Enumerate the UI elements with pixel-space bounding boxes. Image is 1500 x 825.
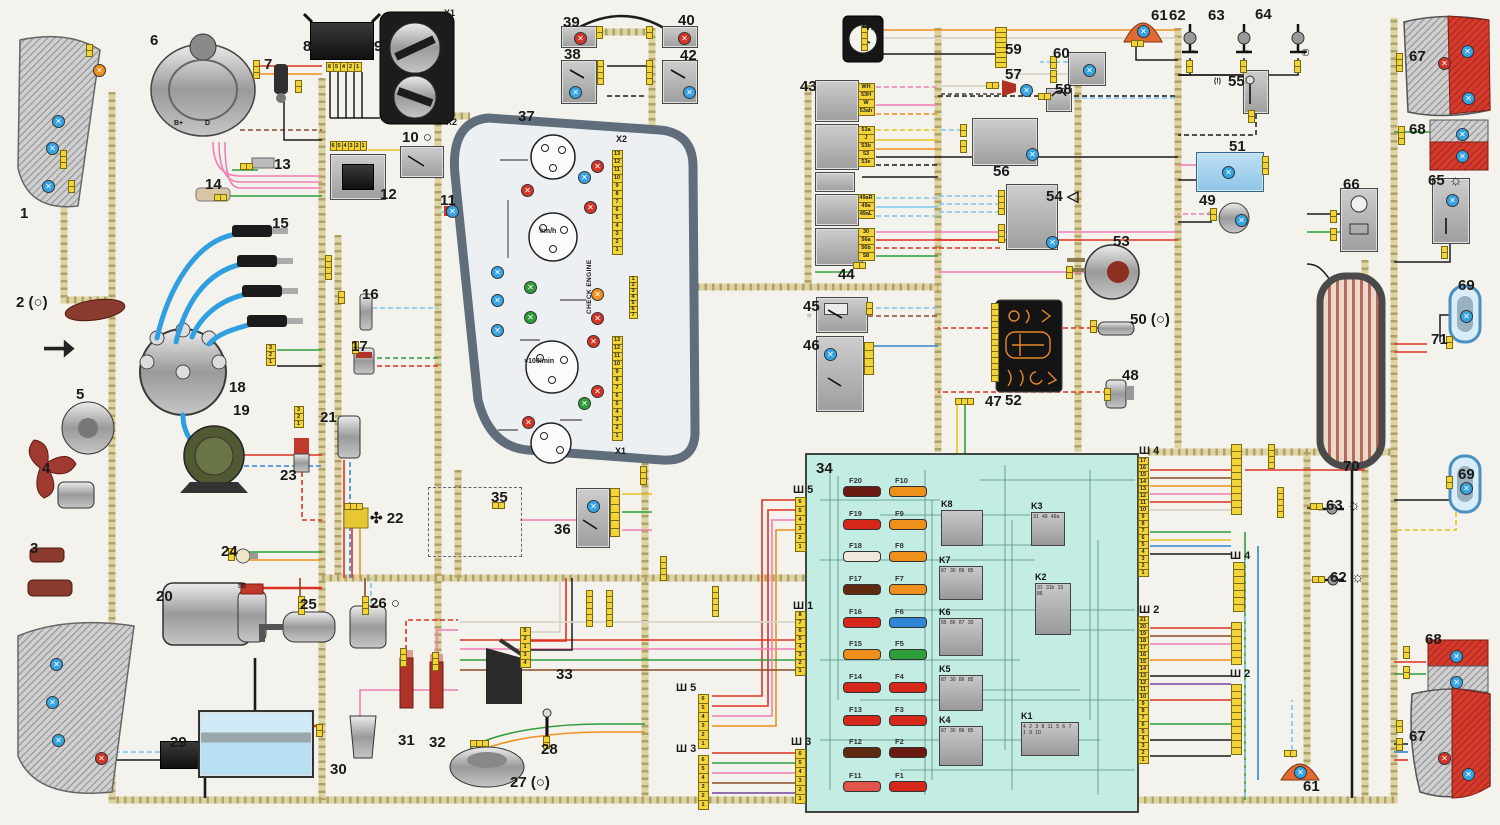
connector-pin bbox=[1268, 462, 1275, 469]
mini-connector bbox=[1186, 60, 1192, 72]
component-label: ☼ bbox=[806, 312, 812, 319]
lamp-icon: ✕ bbox=[683, 86, 696, 99]
mini-connector bbox=[955, 398, 973, 404]
relay-label-K7: K7 bbox=[939, 555, 951, 565]
fuse-F10 bbox=[889, 486, 927, 497]
component-label: 7 bbox=[264, 56, 272, 73]
connector-pin bbox=[482, 740, 489, 747]
lamp-icon: ✕ bbox=[578, 171, 591, 184]
lamp-icon: ✕ bbox=[587, 500, 600, 513]
mini-connector bbox=[1104, 388, 1110, 400]
mini-connector bbox=[1310, 503, 1322, 509]
component-label: 43 bbox=[800, 78, 817, 95]
fuse-F18 bbox=[843, 551, 881, 562]
mini-connector bbox=[1066, 266, 1072, 278]
relay-label-K5: K5 bbox=[939, 664, 951, 674]
component-label: 39 bbox=[563, 14, 580, 31]
mini-connector bbox=[866, 302, 872, 314]
connector-pin bbox=[68, 186, 75, 193]
connector-pin bbox=[1262, 168, 1269, 175]
connector-pin bbox=[1050, 62, 1057, 69]
connector-pin bbox=[1398, 138, 1405, 145]
component-label: 28 bbox=[541, 741, 558, 758]
fuse-label-F5: F5 bbox=[895, 639, 904, 648]
mini-connector bbox=[1038, 93, 1050, 99]
fuse-label-F10: F10 bbox=[895, 476, 908, 485]
connector-pin bbox=[646, 32, 653, 39]
component-label: ☼ bbox=[1244, 48, 1250, 55]
mini-connector bbox=[998, 224, 1004, 242]
component-label: 62 ☼ bbox=[1330, 569, 1365, 586]
relay-pins: 31 31b 15 86 bbox=[1036, 584, 1070, 598]
mini-connector bbox=[338, 291, 344, 303]
lamp-icon: ✕ bbox=[42, 180, 55, 193]
mini-connector bbox=[712, 586, 718, 616]
component-label: Ш 5 bbox=[676, 682, 696, 694]
lamp-icon: ✕ bbox=[1026, 148, 1039, 161]
mini-connector bbox=[1294, 60, 1300, 72]
connector-pin: 49aL bbox=[858, 210, 875, 219]
relay-label-K1: K1 bbox=[1021, 711, 1033, 721]
lamp-icon: ✕ bbox=[1446, 194, 1459, 207]
relay-label-K3: K3 bbox=[1031, 501, 1043, 511]
component-label: Ш 2 bbox=[1230, 668, 1250, 680]
connector-pin bbox=[1403, 652, 1410, 659]
connector-pin bbox=[960, 130, 967, 137]
connector-strip: 65421 bbox=[326, 62, 361, 71]
connector-pin bbox=[960, 146, 967, 153]
component-label: 69 bbox=[1458, 466, 1475, 483]
fuse-label-F6: F6 bbox=[895, 607, 904, 616]
component-label: 23 bbox=[280, 467, 297, 484]
connector-pin bbox=[60, 162, 67, 169]
lamp-icon: ✕ bbox=[678, 32, 691, 45]
component-label: 17 bbox=[351, 338, 368, 355]
relay-pins: 31 49 49a bbox=[1032, 513, 1064, 521]
connector-strip: 321 bbox=[294, 406, 303, 427]
component-label: Ш 2 bbox=[1139, 604, 1159, 616]
connector-pin: 53ah bbox=[858, 107, 875, 116]
connector-pin bbox=[338, 297, 345, 304]
connector-pin: 7 bbox=[629, 312, 638, 319]
connector-pin bbox=[1044, 93, 1051, 100]
mini-connector bbox=[253, 60, 259, 78]
mini-connector bbox=[1131, 40, 1143, 46]
relay-label-K8: K8 bbox=[941, 499, 953, 509]
fuse-F12 bbox=[843, 747, 881, 758]
component-label: X1 bbox=[615, 446, 626, 456]
connector-pin bbox=[1233, 604, 1245, 612]
connector-pin bbox=[1104, 394, 1111, 401]
lamp-icon: ✕ bbox=[1456, 128, 1469, 141]
connector-strip bbox=[1231, 622, 1241, 664]
connector-pin bbox=[1318, 576, 1325, 583]
component-label: 46 bbox=[803, 337, 820, 354]
fuse-F15 bbox=[843, 649, 881, 660]
component-label: 16 bbox=[362, 286, 379, 303]
connector-pin bbox=[606, 620, 613, 627]
connector-pin bbox=[859, 262, 866, 269]
component-label: 24 bbox=[221, 543, 238, 560]
mini-connector bbox=[1396, 53, 1402, 71]
lamp-icon: ✕ bbox=[95, 752, 108, 765]
connector-strip bbox=[864, 342, 873, 374]
fuse-label-F7: F7 bbox=[895, 574, 904, 583]
lamp-icon: ✕ bbox=[1460, 310, 1473, 323]
connector-strip: 212019181716151413121110987654321 bbox=[1138, 616, 1148, 763]
component-label: 12 bbox=[380, 186, 397, 203]
lamp-icon: ✕ bbox=[521, 184, 534, 197]
component-label: 44 bbox=[838, 266, 855, 283]
relay-pins: 87 30 86 85 bbox=[940, 676, 982, 684]
component-label: 59 bbox=[1005, 41, 1022, 58]
component-label: 58 bbox=[1055, 81, 1072, 98]
connector-pin: 1 bbox=[698, 739, 709, 749]
mini-connector bbox=[646, 60, 652, 84]
connector-pin bbox=[1403, 672, 1410, 679]
mini-connector bbox=[1248, 110, 1254, 122]
decor-svg bbox=[0, 0, 1500, 825]
connector-strip: 53aJ53b5353e bbox=[858, 126, 874, 166]
connector-strip bbox=[1233, 562, 1244, 611]
fuse-F17 bbox=[843, 584, 881, 595]
lamp-icon: ✕ bbox=[46, 142, 59, 155]
connector-pin bbox=[1231, 507, 1242, 515]
fuse-F8 bbox=[889, 551, 927, 562]
mini-connector bbox=[60, 150, 66, 168]
component-label: ☼ bbox=[1206, 210, 1212, 217]
component-label: 49 bbox=[1199, 192, 1216, 209]
component-label: km/h bbox=[540, 228, 556, 235]
component-label: 3 bbox=[30, 540, 38, 557]
connector-pin: 1 bbox=[795, 667, 806, 676]
component-label: 50 (○) bbox=[1130, 311, 1170, 328]
component-label: Ш 3 bbox=[791, 736, 811, 748]
connector-strip: 654321 bbox=[330, 141, 366, 150]
connector-strip: 1234567 bbox=[629, 276, 637, 318]
component-label: 18 bbox=[229, 379, 246, 396]
component-label: 64 bbox=[1255, 6, 1272, 23]
component-label: 67 bbox=[1409, 48, 1426, 65]
connector-pin bbox=[1316, 503, 1323, 510]
lamp-icon: ✕ bbox=[1438, 57, 1451, 70]
connector-pin bbox=[866, 308, 873, 315]
mini-connector bbox=[1330, 228, 1336, 240]
connector-pin bbox=[325, 273, 332, 280]
lamp-icon: ✕ bbox=[52, 734, 65, 747]
component-label: 65 ☼ bbox=[1428, 172, 1463, 189]
fuse-F13 bbox=[843, 715, 881, 726]
component-label: 8 bbox=[303, 38, 311, 55]
mini-connector bbox=[606, 590, 612, 626]
mini-connector bbox=[1398, 126, 1404, 144]
connector-pin bbox=[1290, 750, 1297, 757]
relay-K4: 87 30 86 85 bbox=[939, 726, 983, 766]
component-label: 26 ○ bbox=[370, 595, 400, 612]
lamp-icon: ✕ bbox=[584, 201, 597, 214]
connector-strip: WH53HW53ah bbox=[858, 83, 874, 115]
connector-strip: 654321 bbox=[795, 749, 805, 803]
component-label: X2 bbox=[616, 134, 627, 144]
lamp-icon: ✕ bbox=[1462, 768, 1475, 781]
component-label: 37 bbox=[518, 108, 535, 125]
relay-K5: 87 30 86 85 bbox=[939, 675, 983, 711]
mini-connector bbox=[214, 194, 226, 200]
connector-pin bbox=[400, 660, 407, 667]
connector-pin: 1 bbox=[612, 246, 623, 255]
mini-connector bbox=[432, 652, 438, 670]
fuse-F16 bbox=[843, 617, 881, 628]
connector-strip bbox=[610, 488, 619, 536]
mini-connector bbox=[240, 163, 252, 169]
connector-strip: 654321 bbox=[698, 755, 708, 809]
component-label: Ⓟ bbox=[1302, 48, 1309, 58]
wiring-diagram-canvas: 12 (○)345678910 ○1112131415161718192021✣… bbox=[0, 0, 1500, 825]
component-label: 69 bbox=[1458, 277, 1475, 294]
fuse-F5 bbox=[889, 649, 927, 660]
mini-connector bbox=[660, 556, 666, 580]
connector-pin: 1 bbox=[1138, 756, 1149, 764]
fuse-label-F15: F15 bbox=[849, 639, 862, 648]
component-label: 70 bbox=[1343, 458, 1360, 475]
fuse-F9 bbox=[889, 519, 927, 530]
relay-pins: 87 30 86 85 bbox=[940, 727, 982, 735]
fuse-label-F11: F11 bbox=[849, 771, 862, 780]
mini-connector bbox=[586, 590, 592, 626]
mini-connector bbox=[400, 648, 406, 666]
connector-pin bbox=[1090, 326, 1097, 333]
connector-pin bbox=[596, 32, 603, 39]
fuse-label-F3: F3 bbox=[895, 705, 904, 714]
fuse-F2 bbox=[889, 747, 927, 758]
fuse-label-F9: F9 bbox=[895, 509, 904, 518]
fuse-label-F14: F14 bbox=[849, 672, 862, 681]
connector-strip: 52134 bbox=[520, 627, 530, 667]
connector-pin bbox=[356, 503, 363, 510]
connector-pin bbox=[991, 375, 999, 382]
component-label: 54 ◁ bbox=[1046, 187, 1078, 205]
component-label: 71 bbox=[1431, 331, 1448, 348]
mini-connector bbox=[986, 82, 998, 88]
connector-pin bbox=[295, 86, 302, 93]
mini-connector bbox=[640, 466, 646, 484]
lamp-icon: ✕ bbox=[1438, 752, 1451, 765]
connector-pin bbox=[998, 208, 1005, 215]
relay-K6: 85 86 87 30 bbox=[939, 618, 983, 656]
fuse-label-F4: F4 bbox=[895, 672, 904, 681]
component-label: 50 bbox=[238, 583, 246, 590]
connector-pin bbox=[1137, 40, 1144, 47]
connector-pin bbox=[1441, 252, 1448, 259]
lamp-icon: ✕ bbox=[578, 397, 591, 410]
fuse-label-F18: F18 bbox=[849, 541, 862, 550]
fuse-label-F19: F19 bbox=[849, 509, 862, 518]
connector-pin bbox=[1248, 116, 1255, 123]
connector-strip: 321 bbox=[266, 344, 275, 365]
relay-K7: 87 30 86 85 bbox=[939, 566, 983, 600]
mini-connector bbox=[1284, 750, 1296, 756]
component-label: 63 ☼ bbox=[1326, 497, 1361, 514]
component-label: 47 bbox=[985, 393, 1002, 410]
component-label: Ш 4 bbox=[1230, 550, 1250, 562]
lamp-icon: ✕ bbox=[50, 658, 63, 671]
component-label: 40 bbox=[678, 12, 695, 29]
component-label: 2 (○) bbox=[16, 294, 48, 311]
component-label: X2 bbox=[446, 117, 457, 127]
connector-pin bbox=[597, 78, 604, 85]
component-label: 48 bbox=[1122, 367, 1139, 384]
mini-connector bbox=[1277, 487, 1283, 517]
connector-pin bbox=[1231, 747, 1242, 755]
component-label: 67 bbox=[1409, 728, 1426, 745]
mini-connector bbox=[597, 60, 603, 84]
component-label: 30 bbox=[330, 761, 347, 778]
component-label: 68 bbox=[1425, 631, 1442, 648]
connector-strip: 3056a56b58 bbox=[858, 228, 874, 260]
component-label: 21 bbox=[320, 409, 337, 426]
component-label: 4 bbox=[42, 460, 50, 477]
lamp-icon: ✕ bbox=[522, 416, 535, 429]
relay-K8 bbox=[941, 510, 983, 546]
mini-connector bbox=[1403, 646, 1409, 658]
connector-pin bbox=[1396, 65, 1403, 72]
connector-strip: 654321 bbox=[698, 694, 708, 748]
mini-connector bbox=[1262, 156, 1268, 174]
component-label: 13 bbox=[274, 156, 291, 173]
connector-strip: 87654321 bbox=[795, 611, 805, 675]
component-label: 9 bbox=[374, 38, 382, 55]
mini-connector bbox=[596, 26, 602, 38]
connector-strip: 1716151413121110987654321 bbox=[1138, 457, 1148, 576]
connector-pin: 1 bbox=[612, 432, 623, 441]
relay-pins: 4 2 3 8 11 5 6 7 1 9 10 bbox=[1022, 723, 1078, 737]
connector-pin bbox=[1396, 726, 1403, 733]
relay-label-K6: K6 bbox=[939, 607, 951, 617]
connector-pin bbox=[253, 72, 260, 79]
connector-strip: 13121110987654321 bbox=[612, 336, 622, 440]
connector-pin: 1 bbox=[360, 141, 367, 151]
lamp-icon: ✕ bbox=[1461, 45, 1474, 58]
connector-strip bbox=[1231, 444, 1241, 514]
relay-K2: 31 31b 15 86 bbox=[1035, 583, 1071, 635]
mini-connector bbox=[344, 503, 362, 509]
component-label: B+ bbox=[174, 120, 183, 127]
connector-pin bbox=[586, 620, 593, 627]
component-label: 33 bbox=[556, 666, 573, 683]
mini-connector bbox=[86, 44, 92, 56]
fuse-F20 bbox=[843, 486, 881, 497]
connector-strip: 13121110987654321 bbox=[612, 150, 622, 254]
lamp-icon: ✕ bbox=[1020, 84, 1033, 97]
fuse-label-F1: F1 bbox=[895, 771, 904, 780]
fuse-label-F20: F20 bbox=[849, 476, 862, 485]
mini-connector bbox=[1396, 738, 1402, 750]
component-label: 15 bbox=[272, 215, 289, 232]
fuse-label-F17: F17 bbox=[849, 574, 862, 583]
component-label: 10 ○ bbox=[402, 129, 432, 146]
connector-pin bbox=[86, 50, 93, 57]
connector-strip bbox=[1231, 684, 1241, 754]
component-label: Ш 3 bbox=[676, 743, 696, 755]
mini-connector bbox=[1446, 476, 1452, 488]
connector-pin bbox=[646, 78, 653, 85]
connector-strip: 654321 bbox=[795, 497, 805, 551]
mini-connector bbox=[1312, 576, 1324, 582]
mini-connector bbox=[316, 724, 322, 736]
lamp-icon: ✕ bbox=[1460, 482, 1473, 495]
connector-pin bbox=[610, 528, 620, 537]
mini-connector bbox=[362, 596, 368, 614]
fuse-F4 bbox=[889, 682, 927, 693]
lamp-icon: ✕ bbox=[46, 696, 59, 709]
lamp-icon: ✕ bbox=[93, 64, 106, 77]
connector-pin: 58 bbox=[858, 252, 875, 261]
connector-pin bbox=[432, 664, 439, 671]
mini-connector bbox=[295, 80, 301, 92]
mini-connector bbox=[470, 740, 488, 746]
connector-pin bbox=[220, 194, 227, 201]
relay-K1: 4 2 3 8 11 5 6 7 1 9 10 bbox=[1021, 722, 1079, 756]
component-label: 14 bbox=[205, 176, 222, 193]
lamp-icon: ✕ bbox=[591, 385, 604, 398]
component-label: 29 bbox=[170, 734, 187, 751]
lamp-icon: ✕ bbox=[1462, 92, 1475, 105]
connector-pin bbox=[967, 398, 974, 405]
connector-strip bbox=[991, 303, 998, 381]
connector-pin bbox=[362, 608, 369, 615]
component-label: Ш 5 bbox=[793, 484, 813, 496]
component-label: 31 bbox=[398, 732, 415, 749]
mini-connector bbox=[325, 255, 331, 279]
connector-pin bbox=[1446, 482, 1453, 489]
lamp-icon: ✕ bbox=[569, 86, 582, 99]
component-label: 6 bbox=[150, 32, 158, 49]
fuse-label-F2: F2 bbox=[895, 737, 904, 746]
relay-pins: 87 30 86 85 bbox=[940, 567, 982, 575]
component-label: 41 bbox=[862, 17, 879, 34]
component-label: 32 bbox=[429, 734, 446, 751]
connector-pin bbox=[1330, 234, 1337, 241]
fuse-F14 bbox=[843, 682, 881, 693]
fuse-F6 bbox=[889, 617, 927, 628]
connector-pin: 1 bbox=[294, 420, 304, 428]
component-label: ✣ 22 bbox=[370, 509, 403, 527]
fuse-F7 bbox=[889, 584, 927, 595]
connector-pin: 1 bbox=[795, 542, 806, 552]
lamp-icon: ✕ bbox=[1083, 64, 1096, 77]
lamp-icon: ✕ bbox=[491, 294, 504, 307]
lamp-icon: ✕ bbox=[1222, 166, 1235, 179]
mini-connector bbox=[960, 140, 966, 152]
fuse-F3 bbox=[889, 715, 927, 726]
component-label: 34 bbox=[816, 460, 833, 477]
connector-pin bbox=[864, 366, 874, 375]
component-label: Ш 1 bbox=[793, 600, 813, 612]
component-label: 51 bbox=[1229, 138, 1246, 155]
relay-label-K4: K4 bbox=[939, 715, 951, 725]
mini-connector bbox=[998, 190, 1004, 214]
component-label: 53 bbox=[1113, 233, 1130, 250]
connector-pin bbox=[992, 82, 999, 89]
component-label: 55 bbox=[1228, 73, 1245, 90]
connector-pin bbox=[861, 44, 868, 51]
component-label: 52 bbox=[1005, 392, 1022, 409]
component-label: 38 bbox=[564, 46, 581, 63]
component-label: 61 bbox=[1151, 7, 1168, 24]
lamp-icon: ✕ bbox=[1456, 150, 1469, 163]
mini-connector bbox=[68, 180, 74, 192]
lamp-icon: ✕ bbox=[1137, 25, 1150, 38]
